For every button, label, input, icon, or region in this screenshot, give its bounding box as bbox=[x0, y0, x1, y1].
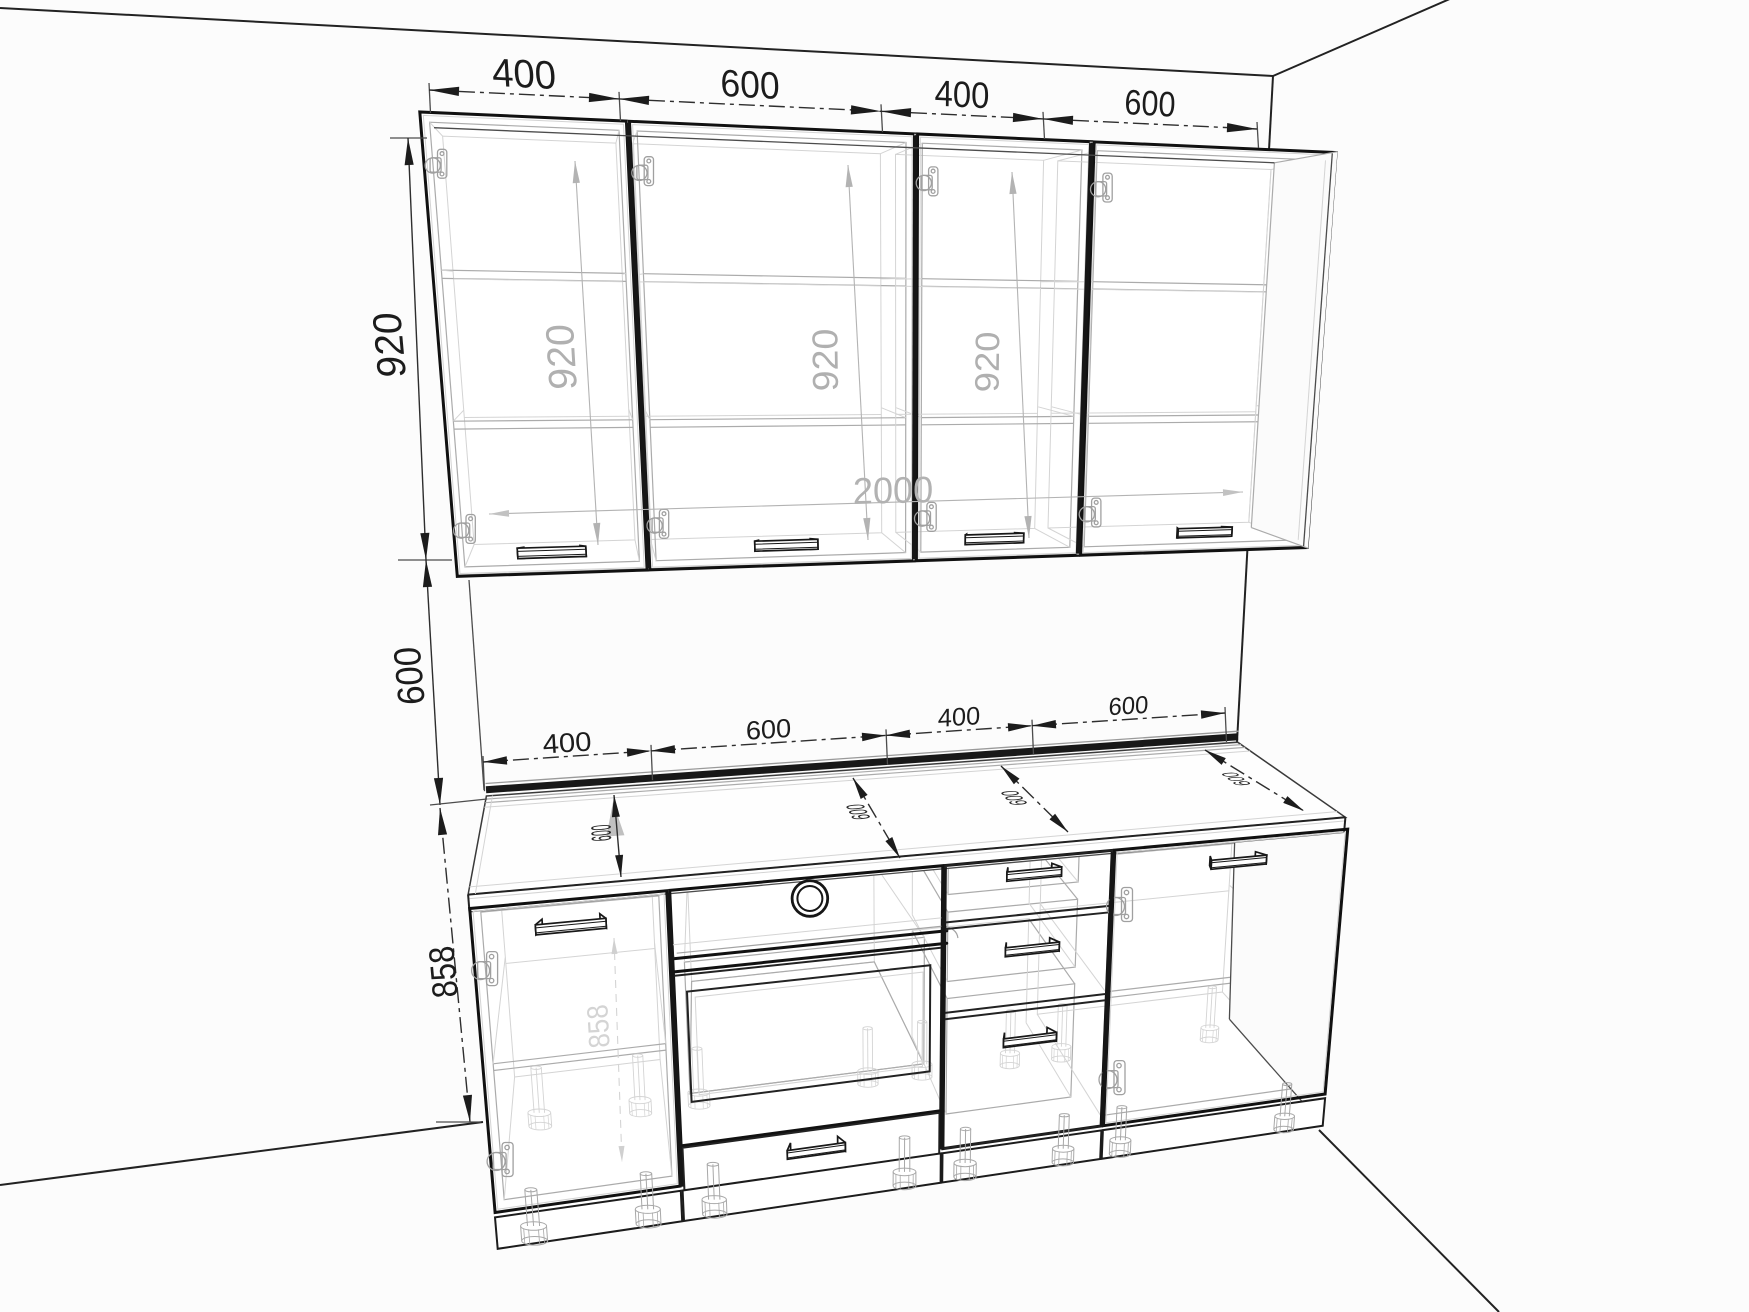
svg-text:600: 600 bbox=[1108, 691, 1149, 721]
svg-text:400: 400 bbox=[491, 51, 558, 98]
svg-text:400: 400 bbox=[938, 702, 981, 733]
svg-text:920: 920 bbox=[805, 329, 846, 392]
svg-text:600: 600 bbox=[1124, 83, 1177, 125]
svg-text:600: 600 bbox=[587, 824, 618, 843]
svg-text:920: 920 bbox=[969, 332, 1008, 393]
svg-text:600: 600 bbox=[720, 62, 780, 108]
svg-text:400: 400 bbox=[542, 725, 593, 759]
svg-text:858: 858 bbox=[422, 944, 466, 1000]
svg-text:920: 920 bbox=[365, 312, 415, 377]
svg-text:858: 858 bbox=[581, 1003, 616, 1050]
svg-text:920: 920 bbox=[538, 324, 586, 390]
svg-text:400: 400 bbox=[934, 73, 989, 117]
svg-text:2000: 2000 bbox=[853, 469, 933, 512]
svg-text:600: 600 bbox=[745, 713, 791, 745]
svg-text:600: 600 bbox=[385, 646, 433, 706]
